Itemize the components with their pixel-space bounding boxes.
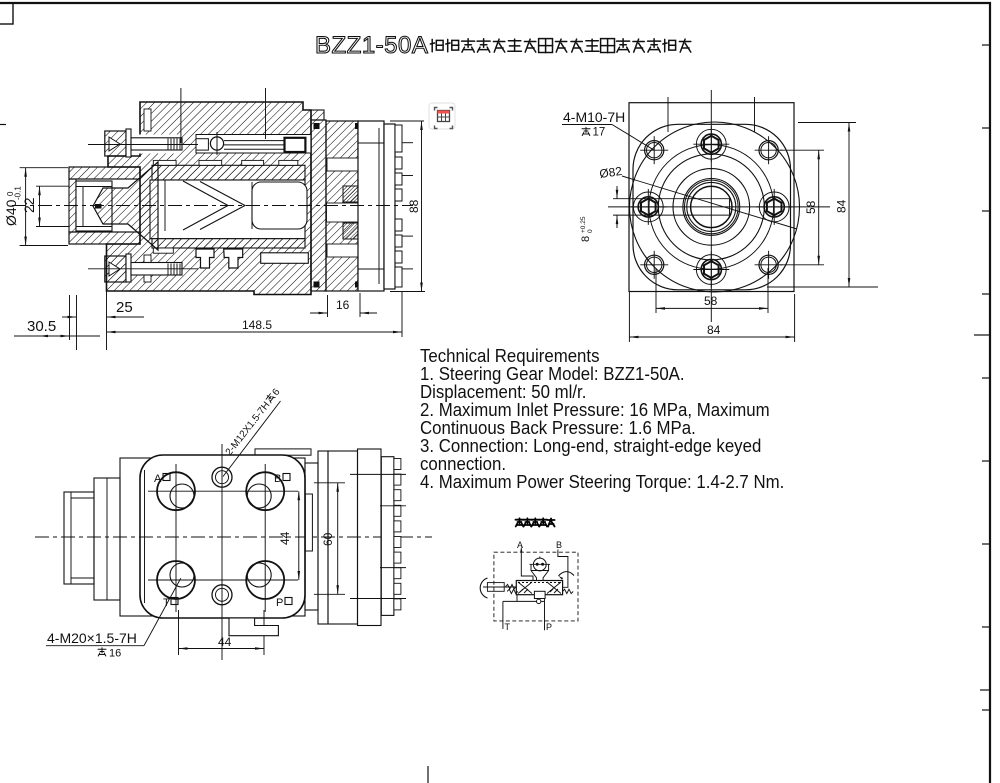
svg-text:4-M20×1.5-7H: 4-M20×1.5-7H [47,630,137,646]
svg-text:16: 16 [336,298,350,312]
svg-text:22: 22 [21,197,37,213]
svg-text:+0.25: +0.25 [580,216,587,233]
svg-text:60: 60 [321,532,335,546]
svg-text:44: 44 [278,531,292,545]
svg-text:P: P [546,622,552,632]
svg-text:T: T [163,597,170,609]
svg-text:B: B [556,540,562,550]
svg-text:16: 16 [109,648,121,660]
svg-text:BZZ1-50A: BZZ1-50A [315,32,428,59]
svg-text:84: 84 [835,199,849,213]
svg-text:P: P [276,597,283,609]
svg-text:8: 8 [580,236,592,242]
svg-text:4. Maximum Power Steering Torq: 4. Maximum Power Steering Torque: 1.4-2.… [420,471,784,492]
svg-text:4-M10-7H: 4-M10-7H [563,109,625,125]
svg-text:A: A [154,473,162,485]
svg-text:Ø40: Ø40 [3,199,19,226]
svg-text:0: 0 [587,229,594,233]
svg-text:17: 17 [593,127,606,139]
svg-text:84: 84 [707,323,721,337]
svg-text:88: 88 [407,199,421,213]
svg-text:B: B [274,473,281,485]
svg-text:A: A [517,540,523,550]
svg-text:T: T [505,622,511,632]
svg-text:25: 25 [116,299,133,316]
svg-text:58: 58 [704,294,718,308]
svg-text:44: 44 [218,635,232,649]
svg-text:58: 58 [804,200,818,214]
svg-text:30.5: 30.5 [27,318,56,335]
svg-text:148.5: 148.5 [242,318,272,332]
